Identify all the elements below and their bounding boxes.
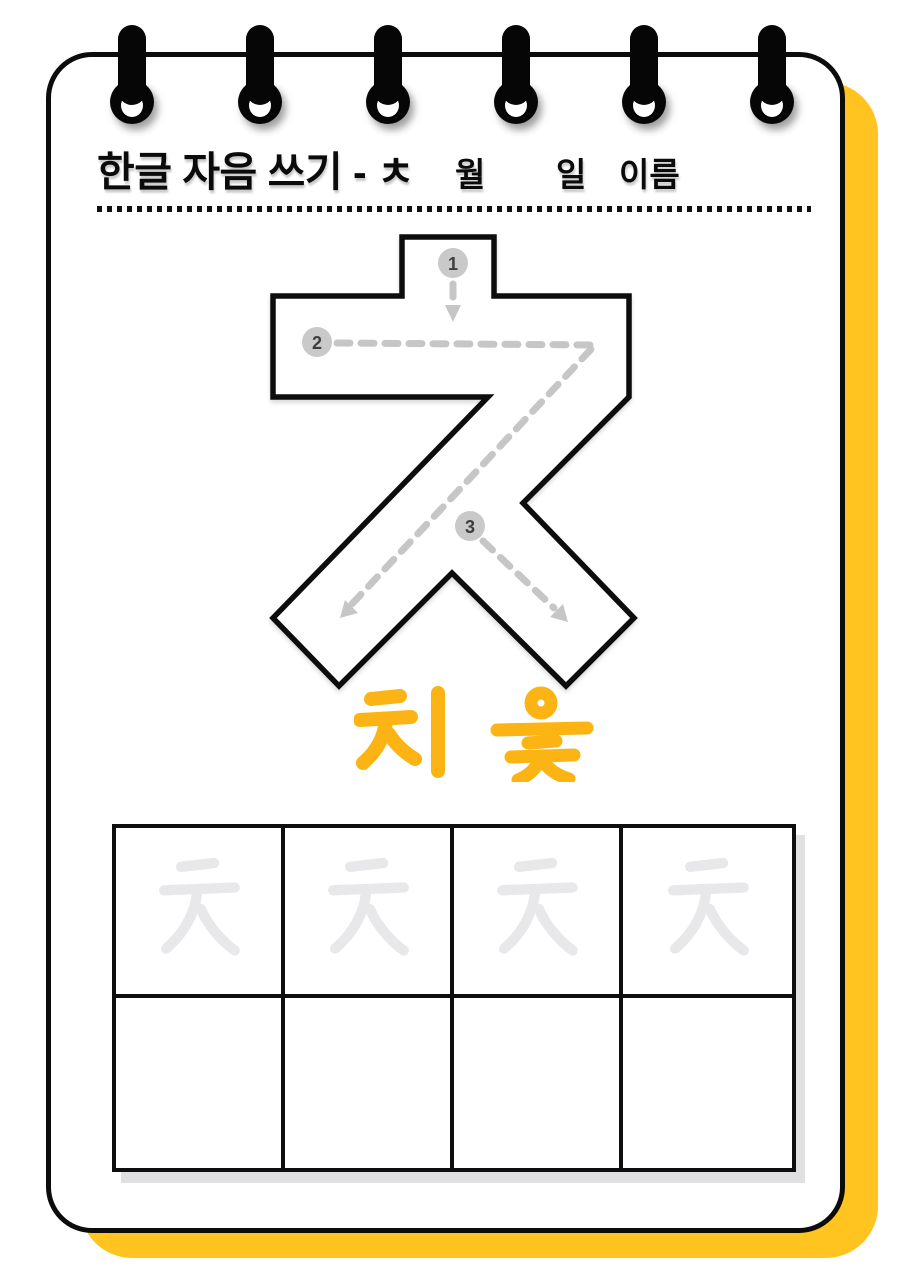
binder-ring xyxy=(744,0,800,136)
stroke2-number: 2 xyxy=(312,333,322,353)
stroke1-number: 1 xyxy=(448,254,458,274)
binder-ring xyxy=(104,0,160,136)
letter-name-text: 치 읓 xyxy=(473,686,474,687)
practice-cell-empty[interactable] xyxy=(623,998,792,1168)
practice-cell-empty[interactable] xyxy=(285,998,454,1168)
ring-clip-icon xyxy=(246,25,274,105)
worksheet-stage: 한글 자음 쓰기 - ㅊ 월 일 이름 ㅊ 1 2 3 치 읓 xyxy=(0,0,905,1280)
practice-cell-ghost[interactable]: ㅊ xyxy=(116,828,285,998)
name-label: 이름 xyxy=(619,148,680,196)
syllable-chi-glyph xyxy=(354,686,454,778)
practice-cell-empty[interactable] xyxy=(116,998,285,1168)
ghost-letter-glyph xyxy=(321,853,415,969)
practice-cell-ghost[interactable]: ㅊ xyxy=(454,828,623,998)
day-label: 일 xyxy=(556,148,586,196)
letter-name-label: 치 읓 xyxy=(0,686,905,782)
ghost-letter-glyph xyxy=(490,853,584,969)
binder-ring xyxy=(360,0,416,136)
binder-ring xyxy=(616,0,672,136)
ring-clip-icon xyxy=(374,25,402,105)
binder-ring xyxy=(232,0,288,136)
ghost-letter-glyph xyxy=(152,853,246,969)
ring-clip-icon xyxy=(118,25,146,105)
binder-ring xyxy=(488,0,544,136)
letter-tracing-area[interactable]: ㅊ 1 2 3 xyxy=(250,225,670,705)
ring-clip-icon xyxy=(630,25,658,105)
letter-outline-svg: 1 2 3 xyxy=(250,225,670,705)
practice-grid: ㅊ ㅊ ㅊ ㅊ xyxy=(112,824,796,1172)
ring-clip-icon xyxy=(758,25,786,105)
letter-outline xyxy=(273,237,634,686)
practice-cell-ghost[interactable]: ㅊ xyxy=(285,828,454,998)
page-title: 한글 자음 쓰기 - ㅊ xyxy=(97,138,414,198)
ring-clip-icon xyxy=(502,25,530,105)
dotted-divider xyxy=(97,206,811,212)
stroke3-number: 3 xyxy=(465,517,475,537)
ghost-letter-glyph xyxy=(661,853,755,969)
practice-cell-ghost[interactable]: ㅊ xyxy=(623,828,792,998)
month-label: 월 xyxy=(455,148,485,196)
syllable-eut-glyph xyxy=(490,686,594,782)
practice-cell-empty[interactable] xyxy=(454,998,623,1168)
